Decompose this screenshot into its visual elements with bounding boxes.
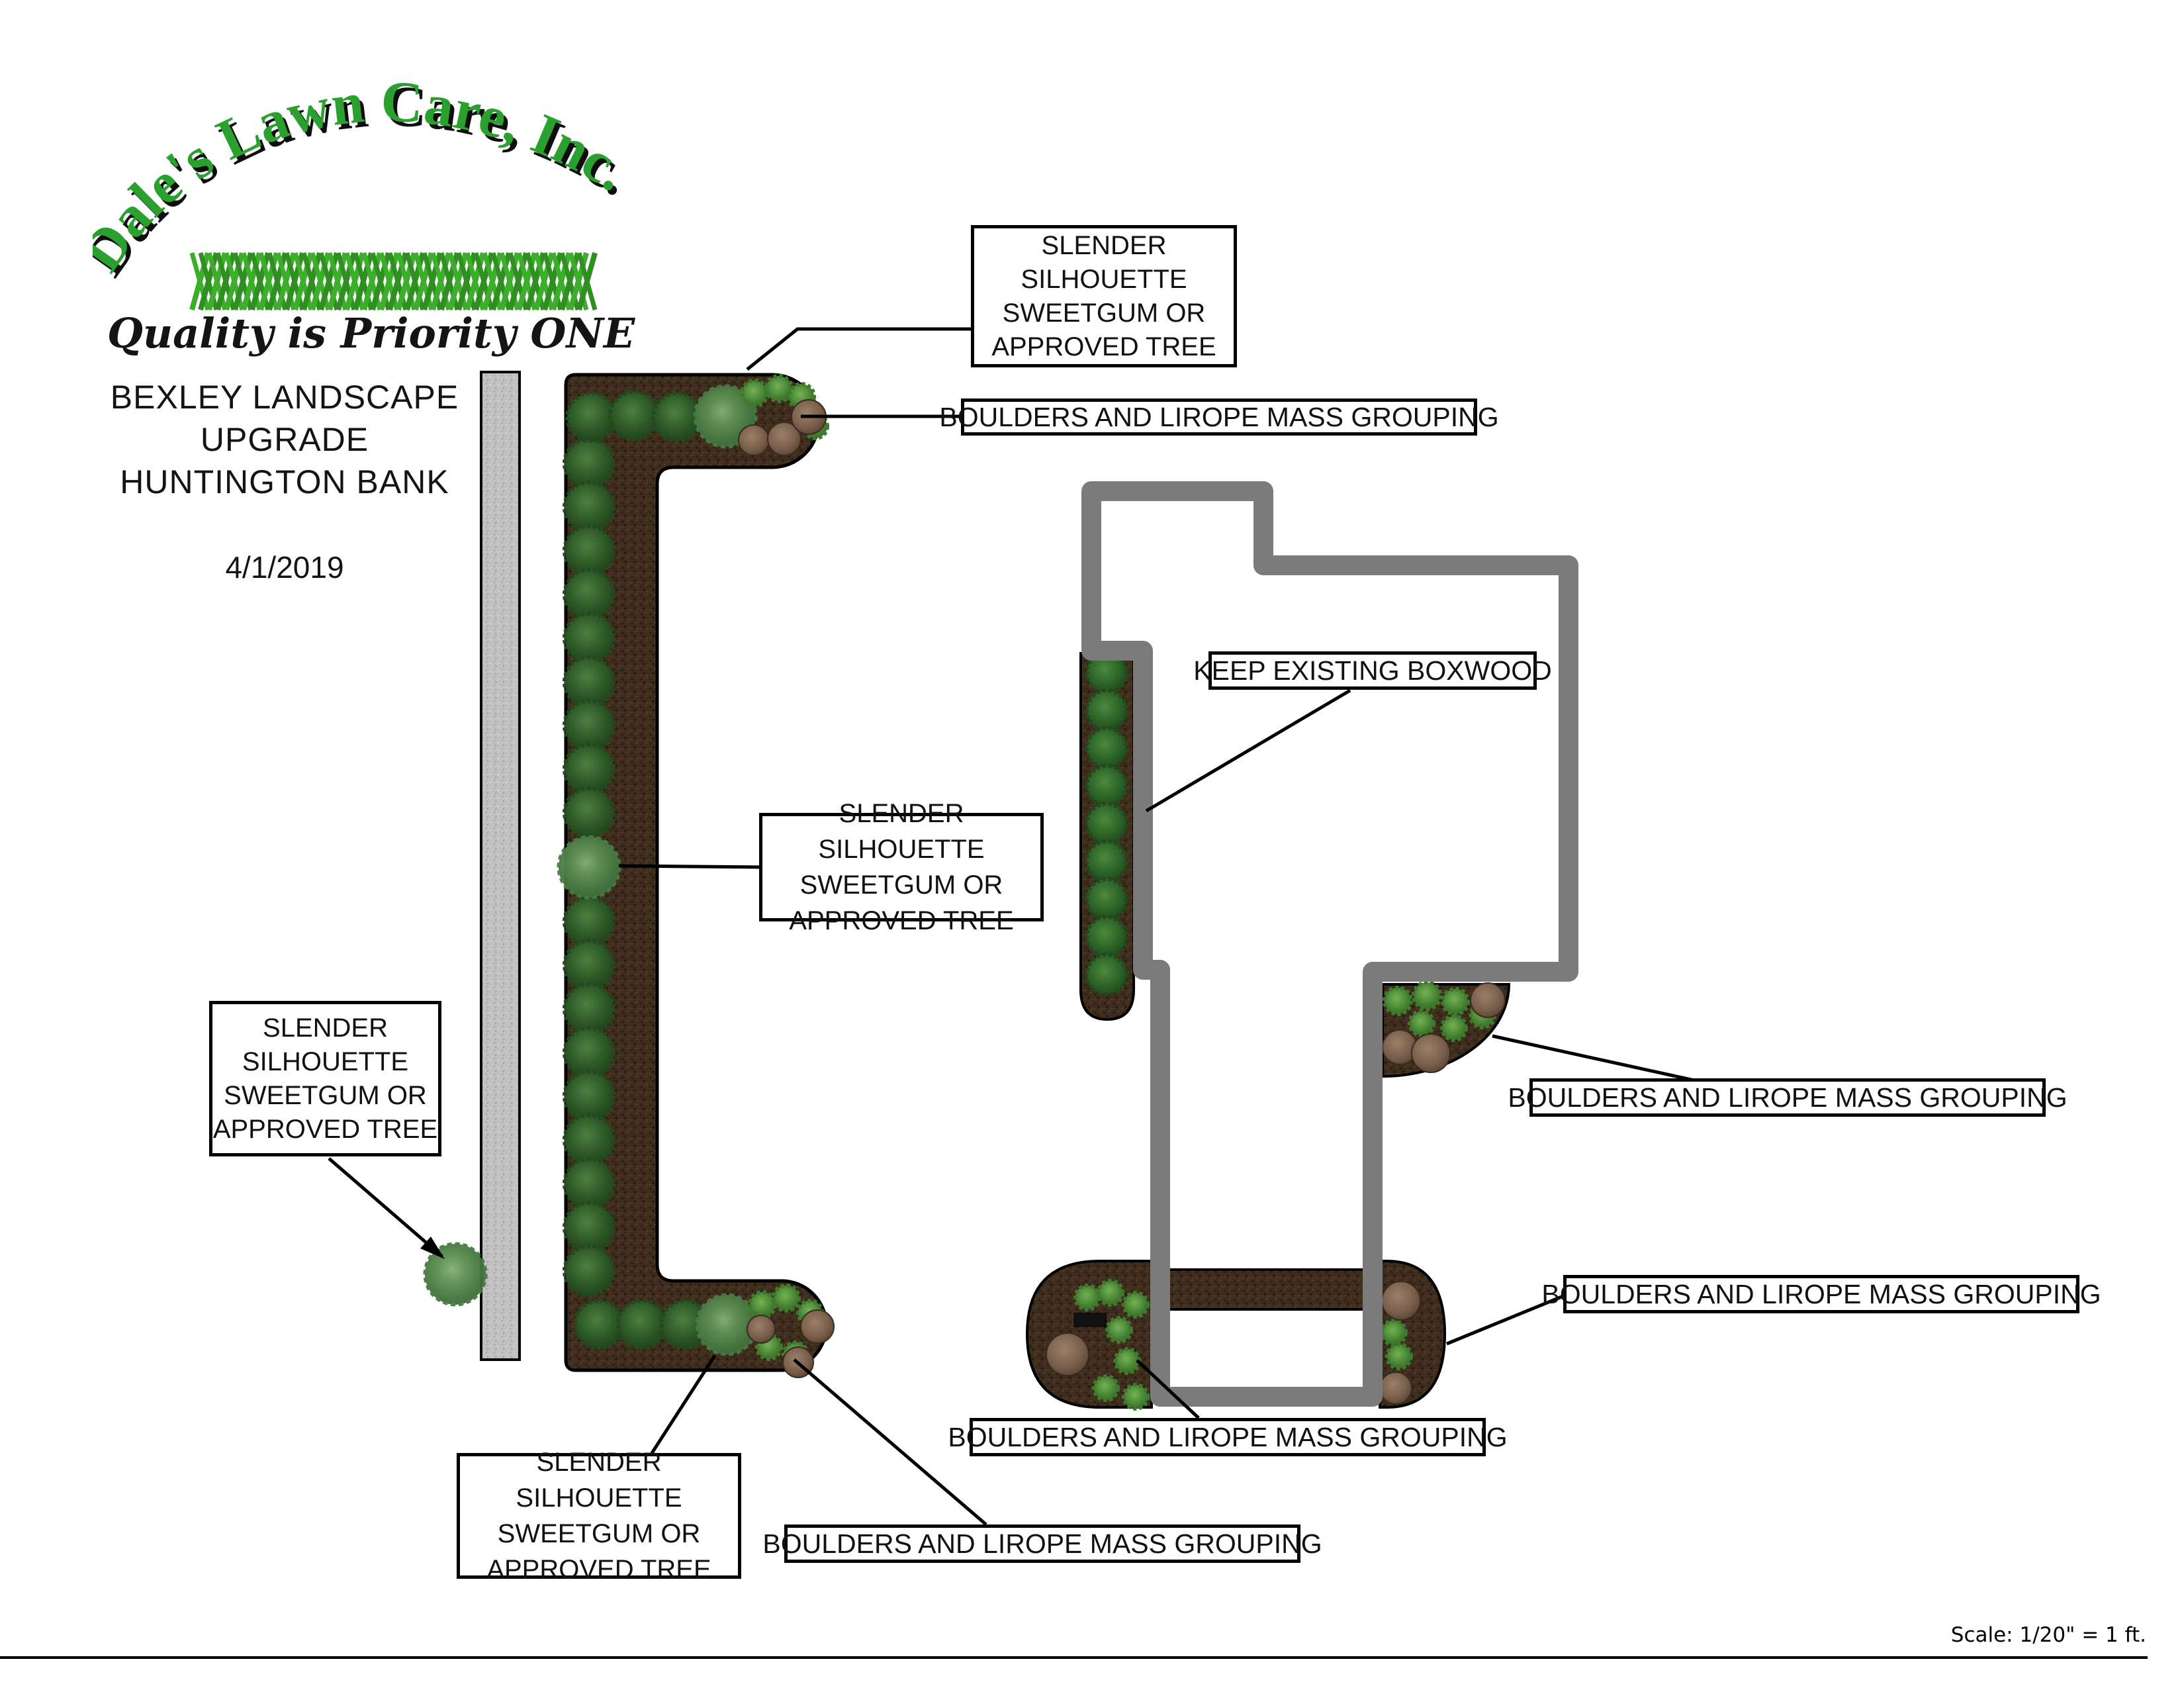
dark-shrub-icon bbox=[567, 393, 615, 441]
title-line-2: UPGRADE bbox=[99, 418, 470, 461]
dark-shrub-icon bbox=[565, 897, 614, 946]
spiky-shrub-icon bbox=[774, 1286, 799, 1311]
bottom-rule bbox=[0, 1656, 2148, 1659]
svg-text:Dale's Lawn Care, Inc.: Dale's Lawn Care, Inc. bbox=[93, 70, 639, 283]
leader-slender-mid bbox=[619, 866, 762, 867]
callout-keep-boxwood: KEEP EXISTING BOXWOOD bbox=[1208, 651, 1537, 690]
plan-date: 4/1/2019 bbox=[99, 549, 470, 585]
spiky-shrub-icon bbox=[1443, 989, 1468, 1014]
spiky-shrub-icon bbox=[1094, 1376, 1118, 1400]
boxwood-icon bbox=[1087, 955, 1126, 994]
leader-boulders-right-upper bbox=[1492, 1036, 1694, 1080]
dark-shrub-icon bbox=[565, 614, 614, 663]
callout-slender-mid: SLENDER SILHOUETTE SWEETGUM OR APPROVED … bbox=[759, 813, 1044, 921]
callout-boulders-bottom-left: BOULDERS AND LIROPE MASS GROUPING bbox=[784, 1524, 1300, 1563]
dark-shrub-icon bbox=[575, 1301, 623, 1348]
spiky-shrub-icon bbox=[1387, 1344, 1411, 1368]
boulder-icon bbox=[801, 1310, 834, 1343]
title-line-1: BEXLEY LANDSCAPE bbox=[99, 376, 470, 418]
spiky-shrub-icon bbox=[1075, 1286, 1099, 1309]
callout-boulders-top: BOULDERS AND LIROPE MASS GROUPING bbox=[961, 399, 1477, 436]
dark-shrub-icon bbox=[565, 1246, 614, 1295]
dark-shrub-icon bbox=[565, 701, 614, 750]
dark-shrub-icon bbox=[618, 1301, 666, 1348]
dark-shrub-icon bbox=[653, 393, 701, 441]
callout-boulders-right-upper: BOULDERS AND LIROPE MASS GROUPING bbox=[1529, 1078, 2046, 1117]
boulder-icon bbox=[739, 425, 769, 455]
leader-keep-boxwood bbox=[1146, 690, 1350, 811]
tree-icon bbox=[559, 837, 619, 898]
boxwood-icon bbox=[1087, 879, 1126, 919]
dark-shrub-icon bbox=[565, 483, 614, 532]
boulder-icon bbox=[1471, 983, 1505, 1017]
title-line-3: HUNTINGTON BANK bbox=[99, 461, 470, 503]
callout-boulders-right-lower: BOULDERS AND LIROPE MASS GROUPING bbox=[1563, 1275, 2079, 1313]
callout-slender-top: SLENDER SILHOUETTE SWEETGUM OR APPROVED … bbox=[971, 225, 1237, 367]
dark-shrub-icon bbox=[565, 526, 614, 575]
boulder-icon bbox=[1382, 1282, 1420, 1320]
spiky-shrub-icon bbox=[1385, 988, 1411, 1014]
spiky-shrub-icon bbox=[1124, 1293, 1148, 1317]
dark-shrub-icon bbox=[565, 1028, 614, 1077]
spiky-shrub-icon bbox=[1414, 982, 1440, 1009]
utility-marker bbox=[1074, 1313, 1106, 1327]
spiky-shrub-icon bbox=[1442, 1016, 1466, 1040]
building-outline bbox=[1091, 491, 1569, 1397]
callout-slender-bottom: SLENDER SILHOUETTE SWEETGUM OR APPROVED … bbox=[457, 1453, 741, 1579]
dark-shrub-icon bbox=[565, 1115, 614, 1164]
dark-shrub-icon bbox=[610, 392, 658, 440]
boxwood-icon bbox=[1087, 728, 1126, 768]
boulder-icon bbox=[1380, 1372, 1412, 1404]
boulder-icon bbox=[747, 1315, 775, 1343]
sidewalk-strip bbox=[481, 372, 520, 1360]
dark-shrub-icon bbox=[565, 984, 614, 1033]
logo-tagline: Quality is Priority ONE bbox=[107, 309, 635, 357]
spiky-shrub-icon bbox=[1124, 1385, 1148, 1409]
spiky-shrub-icon bbox=[1107, 1318, 1131, 1342]
dark-shrub-icon bbox=[565, 1203, 614, 1252]
leader-slender-left bbox=[329, 1158, 442, 1256]
callout-boulders-bottom-mid: BOULDERS AND LIROPE MASS GROUPING bbox=[970, 1418, 1486, 1456]
dark-shrub-icon bbox=[565, 1159, 614, 1208]
dark-shrub-icon bbox=[565, 941, 614, 990]
boulder-icon bbox=[1412, 1034, 1450, 1072]
spiky-shrub-icon bbox=[750, 1292, 775, 1317]
spiky-shrub-icon bbox=[1410, 1011, 1433, 1035]
project-title: BEXLEY LANDSCAPE UPGRADE HUNTINGTON BANK bbox=[99, 376, 470, 503]
boxwood-icon bbox=[1087, 804, 1126, 843]
boulder-icon bbox=[1383, 1030, 1417, 1064]
boxwood-icon bbox=[1087, 917, 1126, 957]
spiky-shrub-icon bbox=[742, 381, 767, 406]
callout-slender-left: SLENDER SILHOUETTE SWEETGUM OR APPROVED … bbox=[209, 1001, 441, 1156]
boxwood-icon bbox=[1087, 841, 1126, 881]
leader-slender-top bbox=[747, 329, 972, 369]
dark-shrub-icon bbox=[565, 439, 614, 488]
spiky-shrub-icon bbox=[1115, 1349, 1139, 1373]
dark-shrub-icon bbox=[565, 570, 614, 619]
scale-note: Scale: 1/20" = 1 ft. bbox=[1951, 1623, 2146, 1647]
dark-shrub-icon bbox=[565, 745, 614, 794]
grass-icon bbox=[192, 253, 595, 310]
company-logo: Dale's Lawn Care, Inc. Dale's Lawn Care,… bbox=[93, 66, 688, 357]
boulder-icon bbox=[1046, 1333, 1089, 1376]
spiky-shrub-icon bbox=[1382, 1321, 1406, 1344]
boxwood-icon bbox=[1087, 690, 1126, 730]
dark-shrub-icon bbox=[565, 1072, 614, 1121]
logo-brand-text: Dale's Lawn Care, Inc. bbox=[93, 70, 639, 283]
dark-shrub-icon bbox=[565, 657, 614, 706]
dark-shrub-icon bbox=[565, 788, 614, 837]
spiky-shrub-icon bbox=[1099, 1281, 1122, 1305]
boxwood-icon bbox=[1087, 766, 1126, 806]
